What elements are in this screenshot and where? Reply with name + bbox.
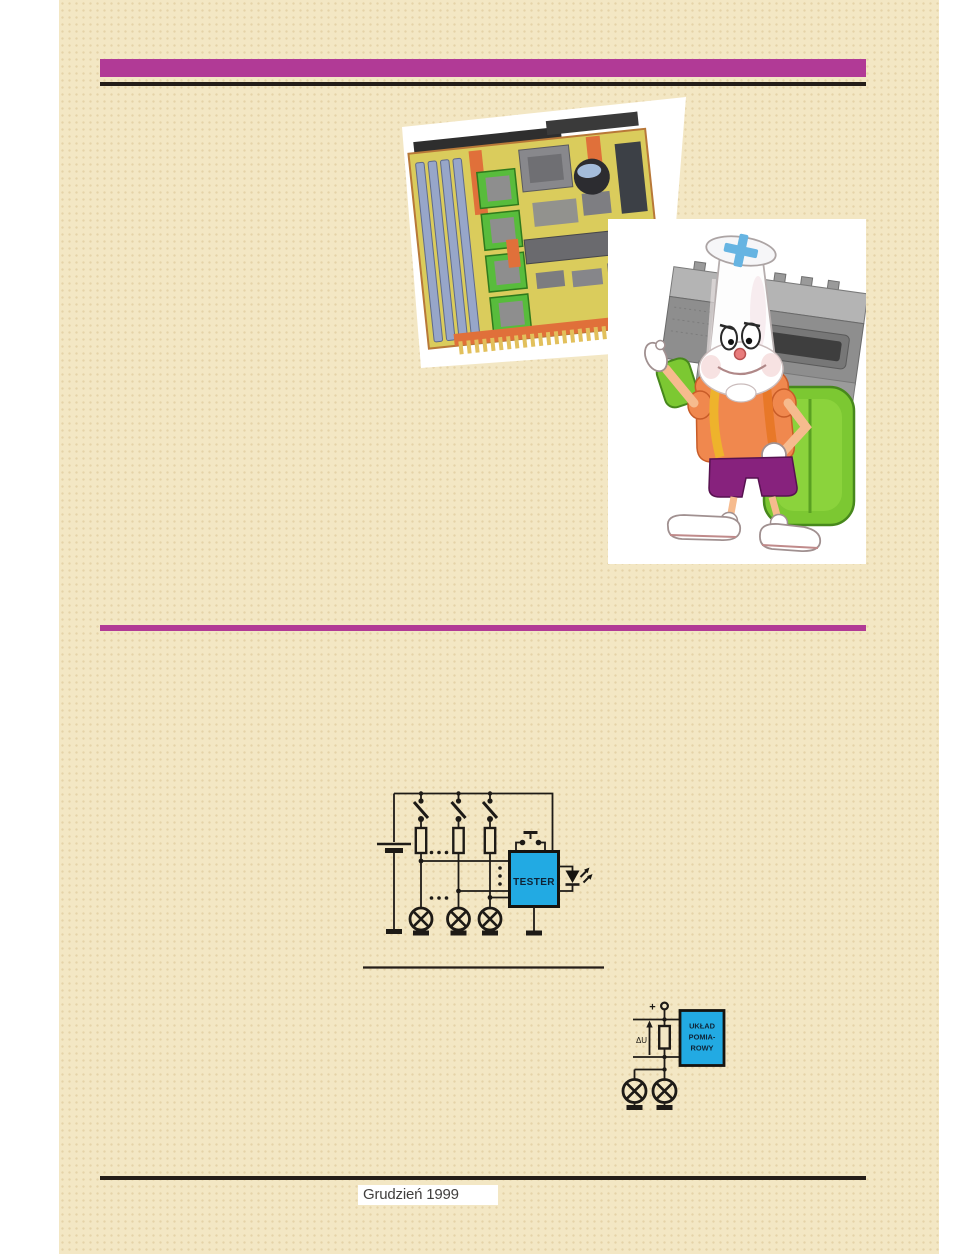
channel-3 — [479, 791, 501, 933]
measurement-box-label-line3: ROWY — [691, 1044, 714, 1053]
resistor-icon — [659, 1026, 670, 1049]
fuse-icon — [453, 828, 463, 853]
delta-u-arrow — [646, 1021, 652, 1056]
plus-terminal-label: + — [649, 1002, 655, 1014]
terminal-icon — [661, 1003, 668, 1010]
led-icon — [559, 867, 593, 892]
channel-1 — [410, 791, 432, 933]
measurement-box-label-line2: POMIA- — [689, 1033, 716, 1042]
lamp-icon — [410, 908, 432, 930]
issue-date-box: Grudzień 1999 — [358, 1185, 498, 1205]
lamp-icon — [653, 1080, 676, 1103]
bottom-rule — [100, 1176, 866, 1180]
lamp-icon — [623, 1080, 646, 1103]
lamp-icon — [479, 908, 501, 930]
fuse-icon — [416, 828, 426, 853]
push-button-icon — [516, 833, 545, 852]
mid-accent-rule — [100, 625, 866, 631]
tester-box-label: TESTER — [513, 877, 555, 888]
switch-icon — [452, 802, 466, 818]
battery-mascot-illustration — [608, 219, 866, 564]
switch-icon — [414, 802, 428, 818]
magazine-page-scan: TESTER + ΔU — [0, 0, 977, 1254]
channel-2 — [448, 791, 470, 933]
switch-icon — [483, 802, 497, 818]
voltage-drop-label: ΔU — [636, 1036, 647, 1045]
left-eye — [721, 327, 737, 350]
issue-date-label: Grudzień 1999 — [358, 1185, 498, 1205]
tester-schematic: TESTER — [360, 782, 610, 972]
top-rule — [100, 82, 866, 86]
lamp-icon — [448, 908, 470, 930]
fuse-icon — [485, 828, 495, 853]
top-accent-bar — [100, 59, 866, 77]
nose — [735, 349, 746, 360]
measurement-schematic: + ΔU UKŁAD POMIA- ROWY — [605, 993, 755, 1121]
battery-icon — [377, 794, 411, 932]
measurement-box-label-line1: UKŁAD — [689, 1022, 716, 1031]
ellipsis-dots — [430, 851, 502, 900]
right-eye — [742, 324, 760, 349]
